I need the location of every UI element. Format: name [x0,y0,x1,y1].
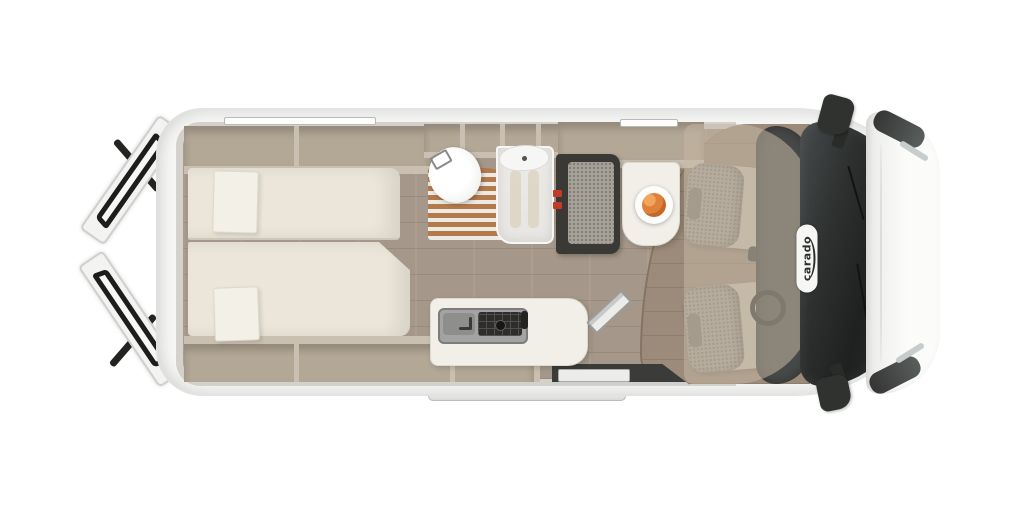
overhead-shelf-rear-top [184,126,430,174]
hood [866,112,940,394]
kitchen-sink [443,313,475,335]
fruit [642,193,666,217]
dinette-bench-cushion [568,162,614,244]
bed-pillow-top [212,170,259,233]
towel [528,170,539,228]
faucet-arm [459,327,471,330]
shelf-divider [294,126,299,166]
fruit-plate [635,186,673,224]
kitchen-counter [430,298,588,366]
shelf-divider [294,344,299,382]
hood-seam [880,142,882,364]
washbasin-drain [522,156,527,161]
tap-handle [521,311,528,329]
hob-burner [495,320,506,331]
cab-roof-overlay [684,124,814,384]
brand-logo-swoosh [807,237,816,281]
rear-wall-window [224,117,376,125]
seatbelt-buckle [553,190,562,197]
gas-hob-grid [478,312,522,336]
wiper-blade [847,166,864,220]
brand-badge: carado [797,225,818,293]
entry-step-plate [558,369,630,382]
seatbelt-buckle [553,202,562,209]
camper-floorplan: carado [0,0,1024,512]
towel [510,170,521,228]
dinette-bench [556,154,620,254]
kitchen-sink-hob-unit [438,308,528,344]
bed-pillow-bottom [213,286,260,342]
dinette-wall-window [620,119,678,127]
